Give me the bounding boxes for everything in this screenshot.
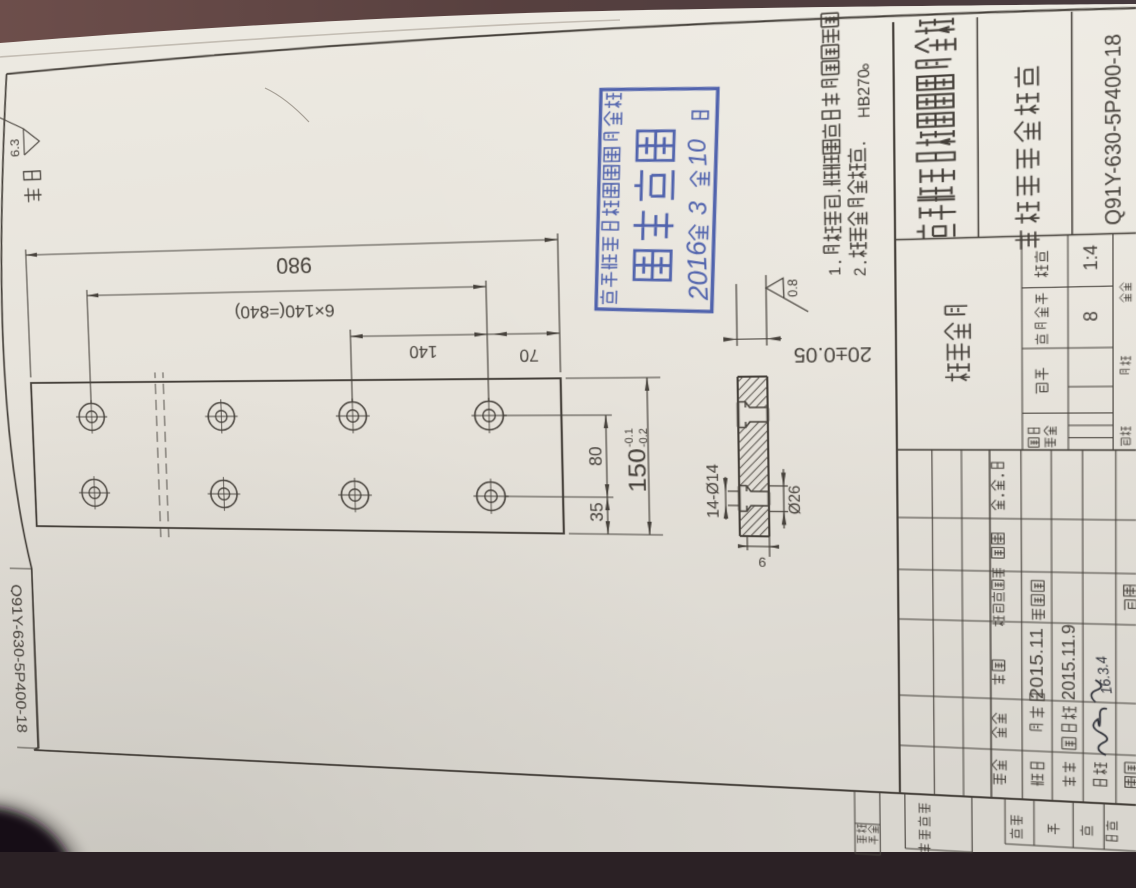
svg-text:1:4: 1:4	[1080, 244, 1102, 271]
svg-text:8: 8	[1080, 311, 1102, 322]
svg-text:2015.11: 2015.11	[1027, 627, 1047, 699]
svg-text:2016: 2016	[681, 239, 714, 302]
svg-text:-0.1: -0.1	[623, 428, 636, 448]
svg-text:20±0.05: 20±0.05	[793, 343, 872, 367]
svg-text:6.3: 6.3	[8, 138, 22, 157]
svg-text:16.3.4: 16.3.4	[1093, 655, 1115, 695]
svg-text:1: 1	[826, 267, 844, 276]
svg-text:6×140(=840): 6×140(=840)	[234, 300, 335, 321]
svg-text:980: 980	[276, 252, 312, 278]
svg-text:HB270: HB270	[854, 69, 873, 119]
svg-text:Q91Y-630-5P400-18: Q91Y-630-5P400-18	[1101, 33, 1126, 225]
svg-text:140: 140	[409, 342, 438, 361]
svg-text:35: 35	[588, 502, 607, 522]
svg-text:2015.11.9: 2015.11.9	[1059, 624, 1080, 700]
svg-text:70: 70	[519, 345, 539, 364]
svg-text:80: 80	[587, 446, 606, 466]
svg-text:3: 3	[683, 201, 712, 215]
svg-text:Ø26: Ø26	[785, 485, 803, 514]
svg-text:0.8: 0.8	[786, 279, 801, 297]
svg-text:150: 150	[622, 448, 651, 492]
svg-text:-0.2: -0.2	[638, 428, 651, 448]
svg-text:9: 9	[758, 554, 766, 569]
svg-text:2: 2	[851, 267, 869, 276]
svg-text:14-Ø14: 14-Ø14	[704, 464, 723, 518]
svg-text:10: 10	[682, 138, 713, 168]
